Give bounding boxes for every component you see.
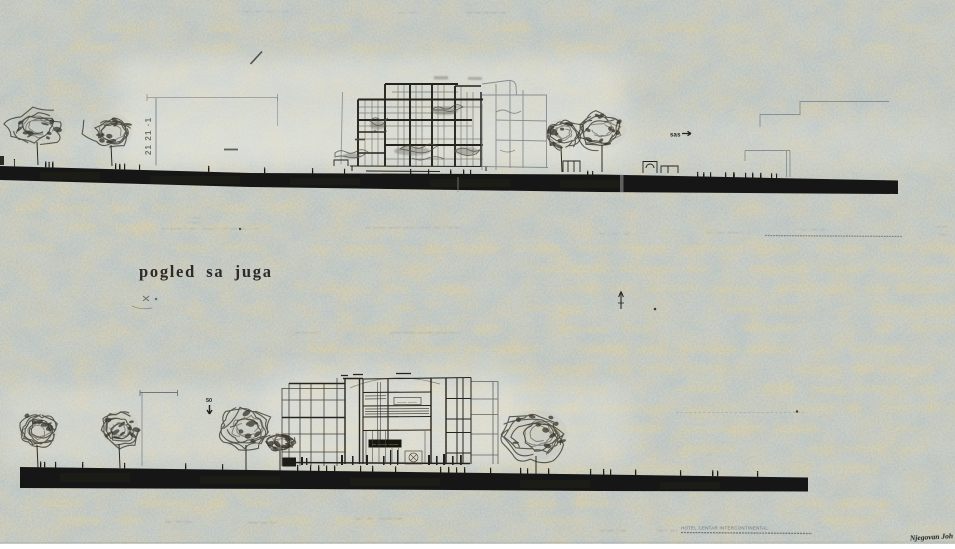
svg-text:pogled sa juga: pogled sa juga	[139, 262, 273, 281]
svg-text:· —·—— ··—· ·——·· —·—·— ··—: · —·—— ··—· ·——·· —·—·— ··—	[156, 226, 260, 232]
svg-text:——·——··—·—·——·—··: ——·——··—·—·——·—··	[390, 330, 460, 336]
svg-text:·—·: ·—·	[938, 232, 947, 238]
svg-text:—·— ··—: —·— ··—	[600, 528, 626, 534]
svg-text:—·· —·: —·· —·	[658, 528, 679, 534]
svg-text:—··—· ——··: —··—· ——··	[707, 230, 744, 236]
svg-text:——·——: ——·——	[397, 400, 418, 405]
svg-text:—· — ·——·—: —· — ·——·—	[355, 516, 403, 522]
svg-text:—·— —··: —·— —··	[295, 330, 321, 336]
svg-text:—·—·——·—: —·—·——·—	[466, 10, 507, 16]
svg-text:··—··—··—···—: ··—··—··—···—	[238, 9, 289, 15]
svg-text:—·—: —·—	[936, 224, 948, 230]
svg-text:HOTEL CENTAR INTERCONTINENTAL: HOTEL CENTAR INTERCONTINENTAL	[681, 526, 768, 531]
svg-text:21 21 ·1: 21 21 ·1	[144, 117, 153, 155]
svg-text:—— —·—·: —— —·—·	[248, 520, 278, 526]
svg-text:—· —··—: —· —··—	[165, 519, 192, 525]
svg-text:·· — ·—·—: ·· — ·—·—	[795, 227, 826, 233]
svg-text:— · —· ·—: — · —· ·—	[600, 231, 630, 237]
svg-text:—·—— ——·——· —— —·· ——·: —·—— ——·——· —— —·· ——·	[365, 225, 463, 231]
svg-text:sas: sas	[670, 133, 681, 139]
svg-text:50: 50	[206, 398, 212, 404]
svg-text:—··—·: —··—·	[398, 10, 420, 16]
